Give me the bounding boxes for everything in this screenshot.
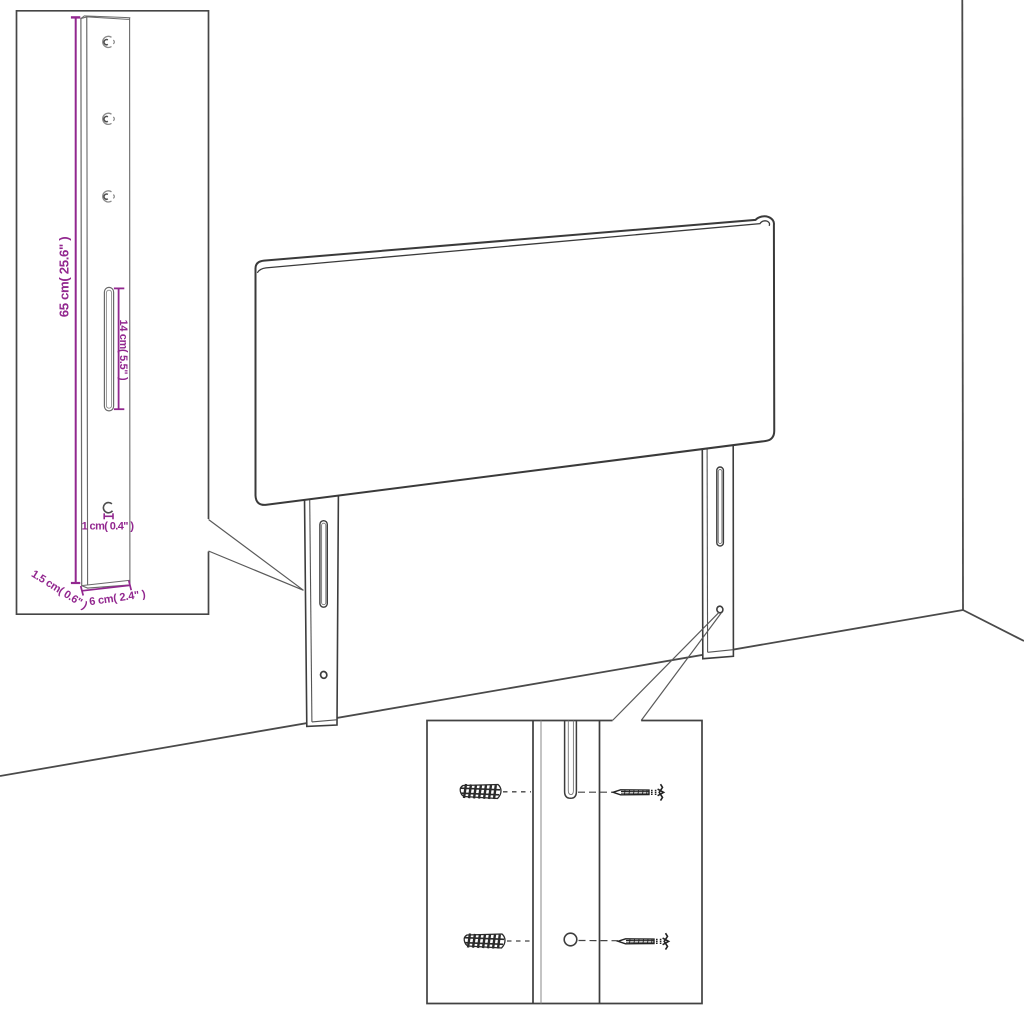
svg-text:14 cm( 5.5" ): 14 cm( 5.5" ) bbox=[117, 320, 129, 381]
svg-text:65 cm( 25.6" ): 65 cm( 25.6" ) bbox=[56, 237, 71, 318]
svg-text:1 cm( 0.4" ): 1 cm( 0.4" ) bbox=[82, 521, 135, 533]
